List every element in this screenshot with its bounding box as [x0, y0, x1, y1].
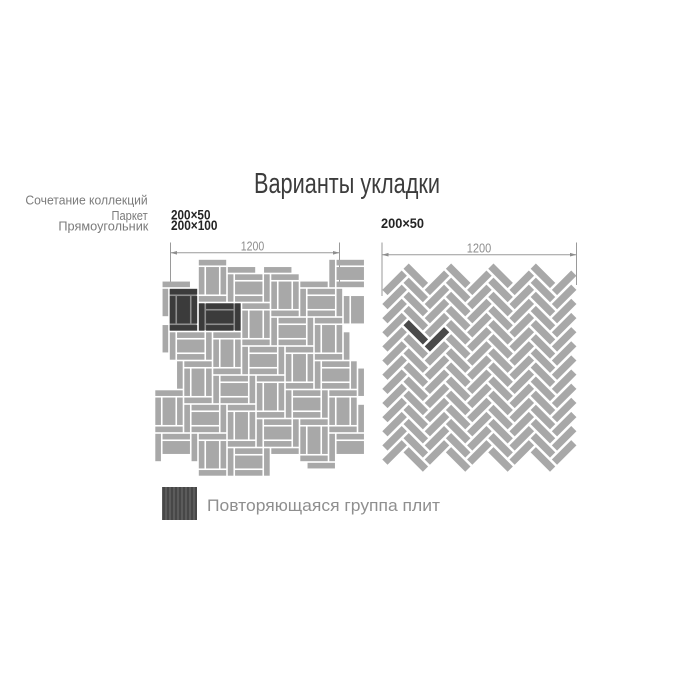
- svg-text:1200: 1200: [241, 240, 265, 254]
- svg-text:Прямоугольник: Прямоугольник: [58, 219, 148, 234]
- svg-text:200×50: 200×50: [381, 215, 424, 231]
- svg-text:Варианты укладки: Варианты укладки: [254, 168, 440, 200]
- svg-text:1200: 1200: [467, 241, 492, 255]
- svg-text:200×100: 200×100: [171, 218, 218, 233]
- svg-text:Сочетание коллекций: Сочетание коллекций: [25, 192, 147, 207]
- svg-text:Повторяющаяся группа плит: Повторяющаяся группа плит: [207, 497, 440, 515]
